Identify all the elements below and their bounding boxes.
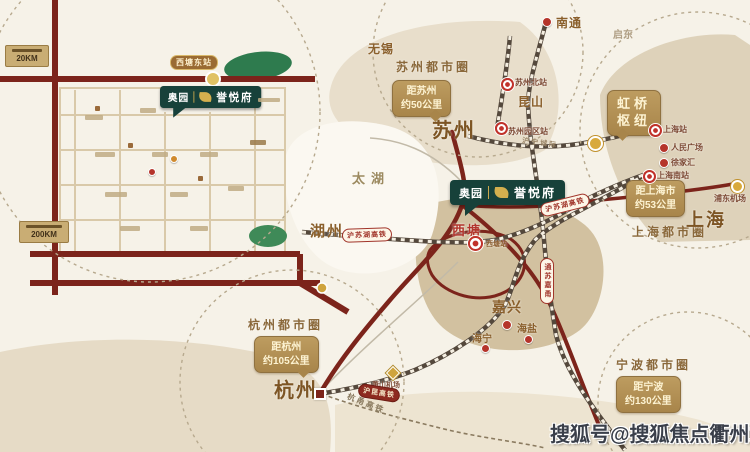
callout-suzhou-distance: 距苏州 约50公里 xyxy=(392,80,451,117)
building-icon xyxy=(198,176,203,181)
inset-station-badge: 西塘东站 xyxy=(170,55,218,70)
inset-gold-node xyxy=(317,283,327,293)
city-huzhou: 湖州 xyxy=(310,220,344,241)
map-label-smudge xyxy=(258,98,280,102)
inset-interchange xyxy=(206,72,220,86)
city-marker-nantong xyxy=(542,17,552,27)
station-xujiahui-label: 徐家汇 xyxy=(671,157,695,168)
inset-badge-smudge xyxy=(12,49,43,52)
map-label-smudge xyxy=(105,192,127,197)
banner-divider xyxy=(193,91,194,102)
city-nantong: 南通 xyxy=(556,14,582,31)
city-jiaxing: 嘉兴 xyxy=(492,297,522,317)
city-marker-jiaxing xyxy=(502,320,512,330)
project-brand-label: 奥园 xyxy=(459,185,483,201)
project-name-label: 誉悦府 xyxy=(514,184,556,201)
pudong-airport-node xyxy=(731,180,744,193)
banner-pointer xyxy=(173,107,186,118)
pudong-airport-label: 浦东机场 xyxy=(714,193,746,204)
inset-green-area-2 xyxy=(249,225,287,247)
city-qidong: 启东 xyxy=(613,26,633,41)
map-label-smudge xyxy=(190,226,208,231)
map-label-smudge xyxy=(228,186,244,191)
callout-line: 距苏州 xyxy=(401,85,442,99)
callout-line: 距宁波 xyxy=(625,381,672,395)
inset-station-badge-label: 西塘东站 xyxy=(176,58,212,67)
city-haiyan: 海盐 xyxy=(517,320,537,335)
station-suzhou-north-marker xyxy=(501,78,514,91)
inset-project-name-label: 誉悦府 xyxy=(216,90,253,105)
leaf-icon xyxy=(198,92,213,102)
station-shanghai-south-label: 上海南站 xyxy=(657,170,689,181)
railway-tongsujiayong-capsule: 通苏嘉甬 xyxy=(540,258,554,304)
station-shanghai-label: 上海站 xyxy=(663,124,687,135)
callout-ningbo-distance: 距宁波 约130公里 xyxy=(616,376,681,413)
city-kunshan: 昆山 xyxy=(518,93,544,110)
watermark: 搜狐号@搜狐焦点衢州站 xyxy=(550,418,750,447)
hangzhou-station-marker xyxy=(314,388,326,400)
city-hangzhou: 杭州 xyxy=(274,374,318,403)
station-peoples-square-label: 人民广场 xyxy=(671,142,703,153)
city-marker-haining xyxy=(481,344,490,353)
metro-circle-ningbo: 宁波都市圈 xyxy=(616,356,691,373)
callout-hangzhou-distance: 距杭州 约105公里 xyxy=(254,336,319,373)
callout-shanghai-distance: 距上海市 约53公里 xyxy=(626,180,685,217)
railway-husuhu-capsule: 沪苏湖高铁 xyxy=(342,227,392,243)
inset-badge-smudge xyxy=(26,225,62,228)
map-label-smudge xyxy=(152,152,168,157)
metro-circle-hangzhou: 杭州都市圈 xyxy=(248,316,323,333)
callout-line: 距上海市 xyxy=(635,185,676,199)
map-label-smudge xyxy=(200,152,218,157)
building-icon xyxy=(95,106,100,111)
station-xujiahui-marker xyxy=(659,158,669,168)
map-label-smudge xyxy=(250,140,266,145)
lake-taihu-label: 太湖 xyxy=(352,168,390,187)
project-station-marker xyxy=(468,236,483,251)
station-shanghai-south-marker xyxy=(643,170,656,183)
inset-poi-dot xyxy=(170,155,178,163)
station-shanghai-marker xyxy=(649,124,662,137)
inset-distance-top-label: 20KM xyxy=(16,54,37,63)
callout-line: 约130公里 xyxy=(625,395,672,409)
inset-distance-badge-top: 20KM xyxy=(5,45,49,67)
city-haining: 海宁 xyxy=(472,330,492,345)
callout-line: 距杭州 xyxy=(263,341,310,355)
map-label-smudge xyxy=(85,115,103,120)
metro-circle-suzhou: 苏州都市圈 xyxy=(396,58,471,75)
leaf-icon xyxy=(493,187,510,198)
station-suzhou-park-marker xyxy=(495,122,508,135)
map-label-smudge xyxy=(170,192,188,197)
inset-project-banner: 奥园 誉悦府 xyxy=(160,86,261,108)
inset-distance-bottom-label: 200KM xyxy=(31,230,57,239)
inset-distance-badge-bottom: 200KM xyxy=(19,221,69,243)
map-label-smudge xyxy=(140,108,156,113)
station-suzhou-north-label: 苏州北站 xyxy=(515,77,547,88)
city-marker-haiyan xyxy=(524,335,533,344)
inset-brand-label: 奥园 xyxy=(168,90,189,104)
map-label-smudge xyxy=(95,152,115,157)
banner-divider xyxy=(488,186,489,199)
hongqiao-hub-node xyxy=(588,136,603,151)
callout-line: 约53公里 xyxy=(635,199,676,213)
inset-poi-dot xyxy=(148,168,156,176)
project-station-label: 西塘站 xyxy=(486,239,507,249)
banner-pointer xyxy=(465,204,480,216)
map-label-smudge xyxy=(120,226,140,231)
city-wuxi: 无锡 xyxy=(368,40,394,57)
station-peoples-square-marker xyxy=(659,143,669,153)
city-shanghai: 上海 xyxy=(686,206,726,232)
lake-taihu xyxy=(284,121,438,273)
location-map: 20KM 200KM 西塘东站 奥园 誉悦府 苏州都市圈 上海都市圈 杭州都市圈… xyxy=(0,0,750,452)
building-icon xyxy=(128,143,133,148)
callout-line: 虹桥 xyxy=(617,96,651,113)
